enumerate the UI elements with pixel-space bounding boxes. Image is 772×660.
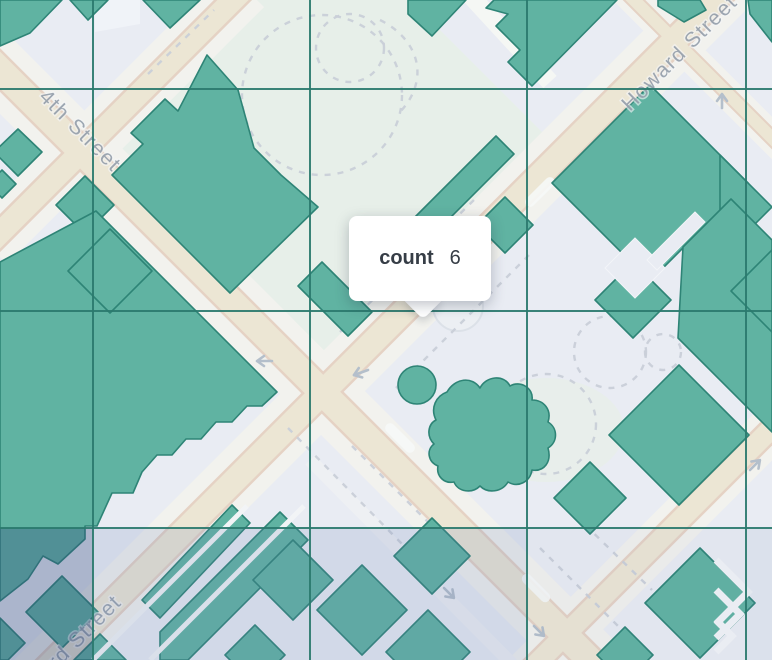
grid-cell-tint — [310, 528, 527, 660]
building — [398, 366, 436, 404]
map-view[interactable]: 4th Street Howard Street Howard Street c… — [0, 0, 772, 660]
tooltip-value: 6 — [450, 247, 461, 270]
map-tooltip: count 6 — [349, 216, 491, 301]
grid-cell-tint — [0, 528, 93, 660]
grid-cell-tint — [93, 528, 310, 660]
grid-cell-tint — [746, 528, 772, 660]
tooltip-field-label: count — [379, 247, 433, 270]
grid-cell-tint — [527, 528, 746, 660]
map-canvas[interactable]: 4th Street Howard Street Howard Street — [0, 0, 772, 660]
